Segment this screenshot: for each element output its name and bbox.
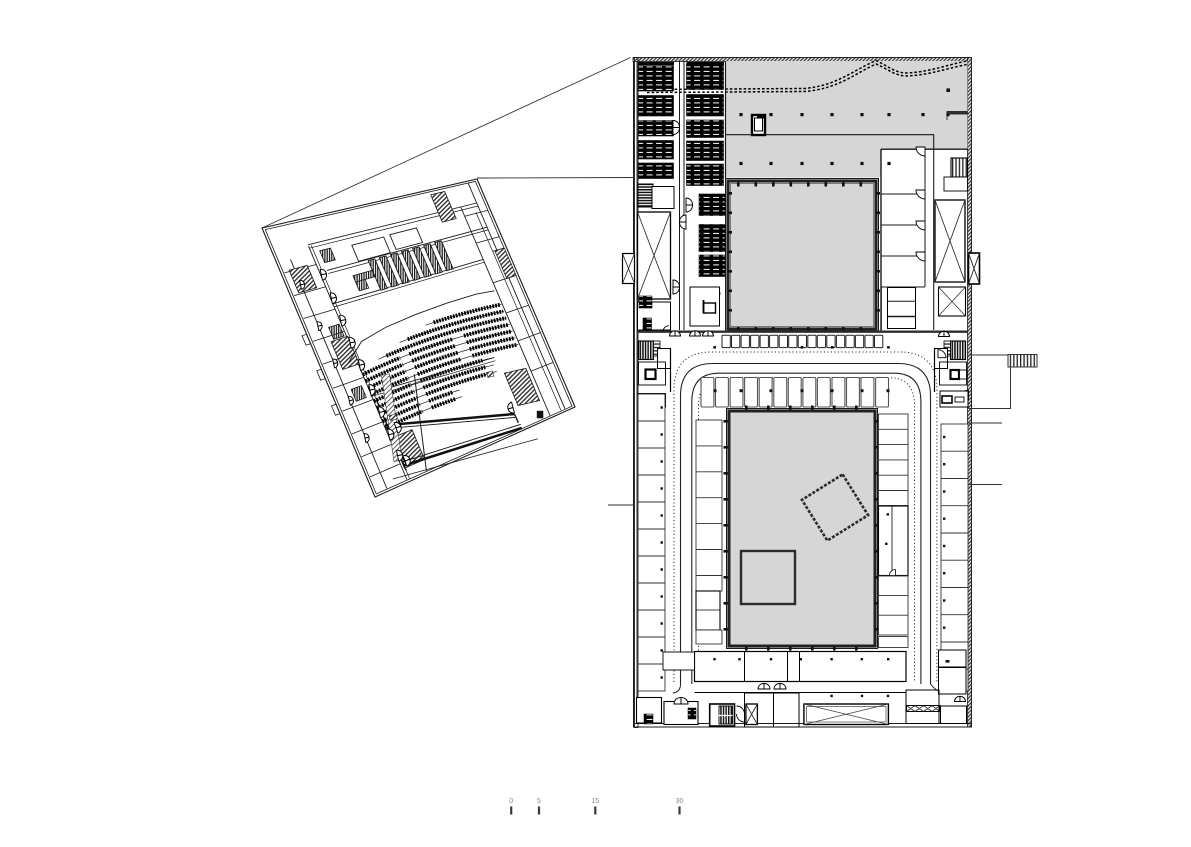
svg-text:0: 0 [509, 798, 513, 805]
svg-text:15: 15 [591, 798, 599, 805]
svg-text:5: 5 [537, 798, 541, 805]
svg-text:30: 30 [676, 798, 684, 805]
